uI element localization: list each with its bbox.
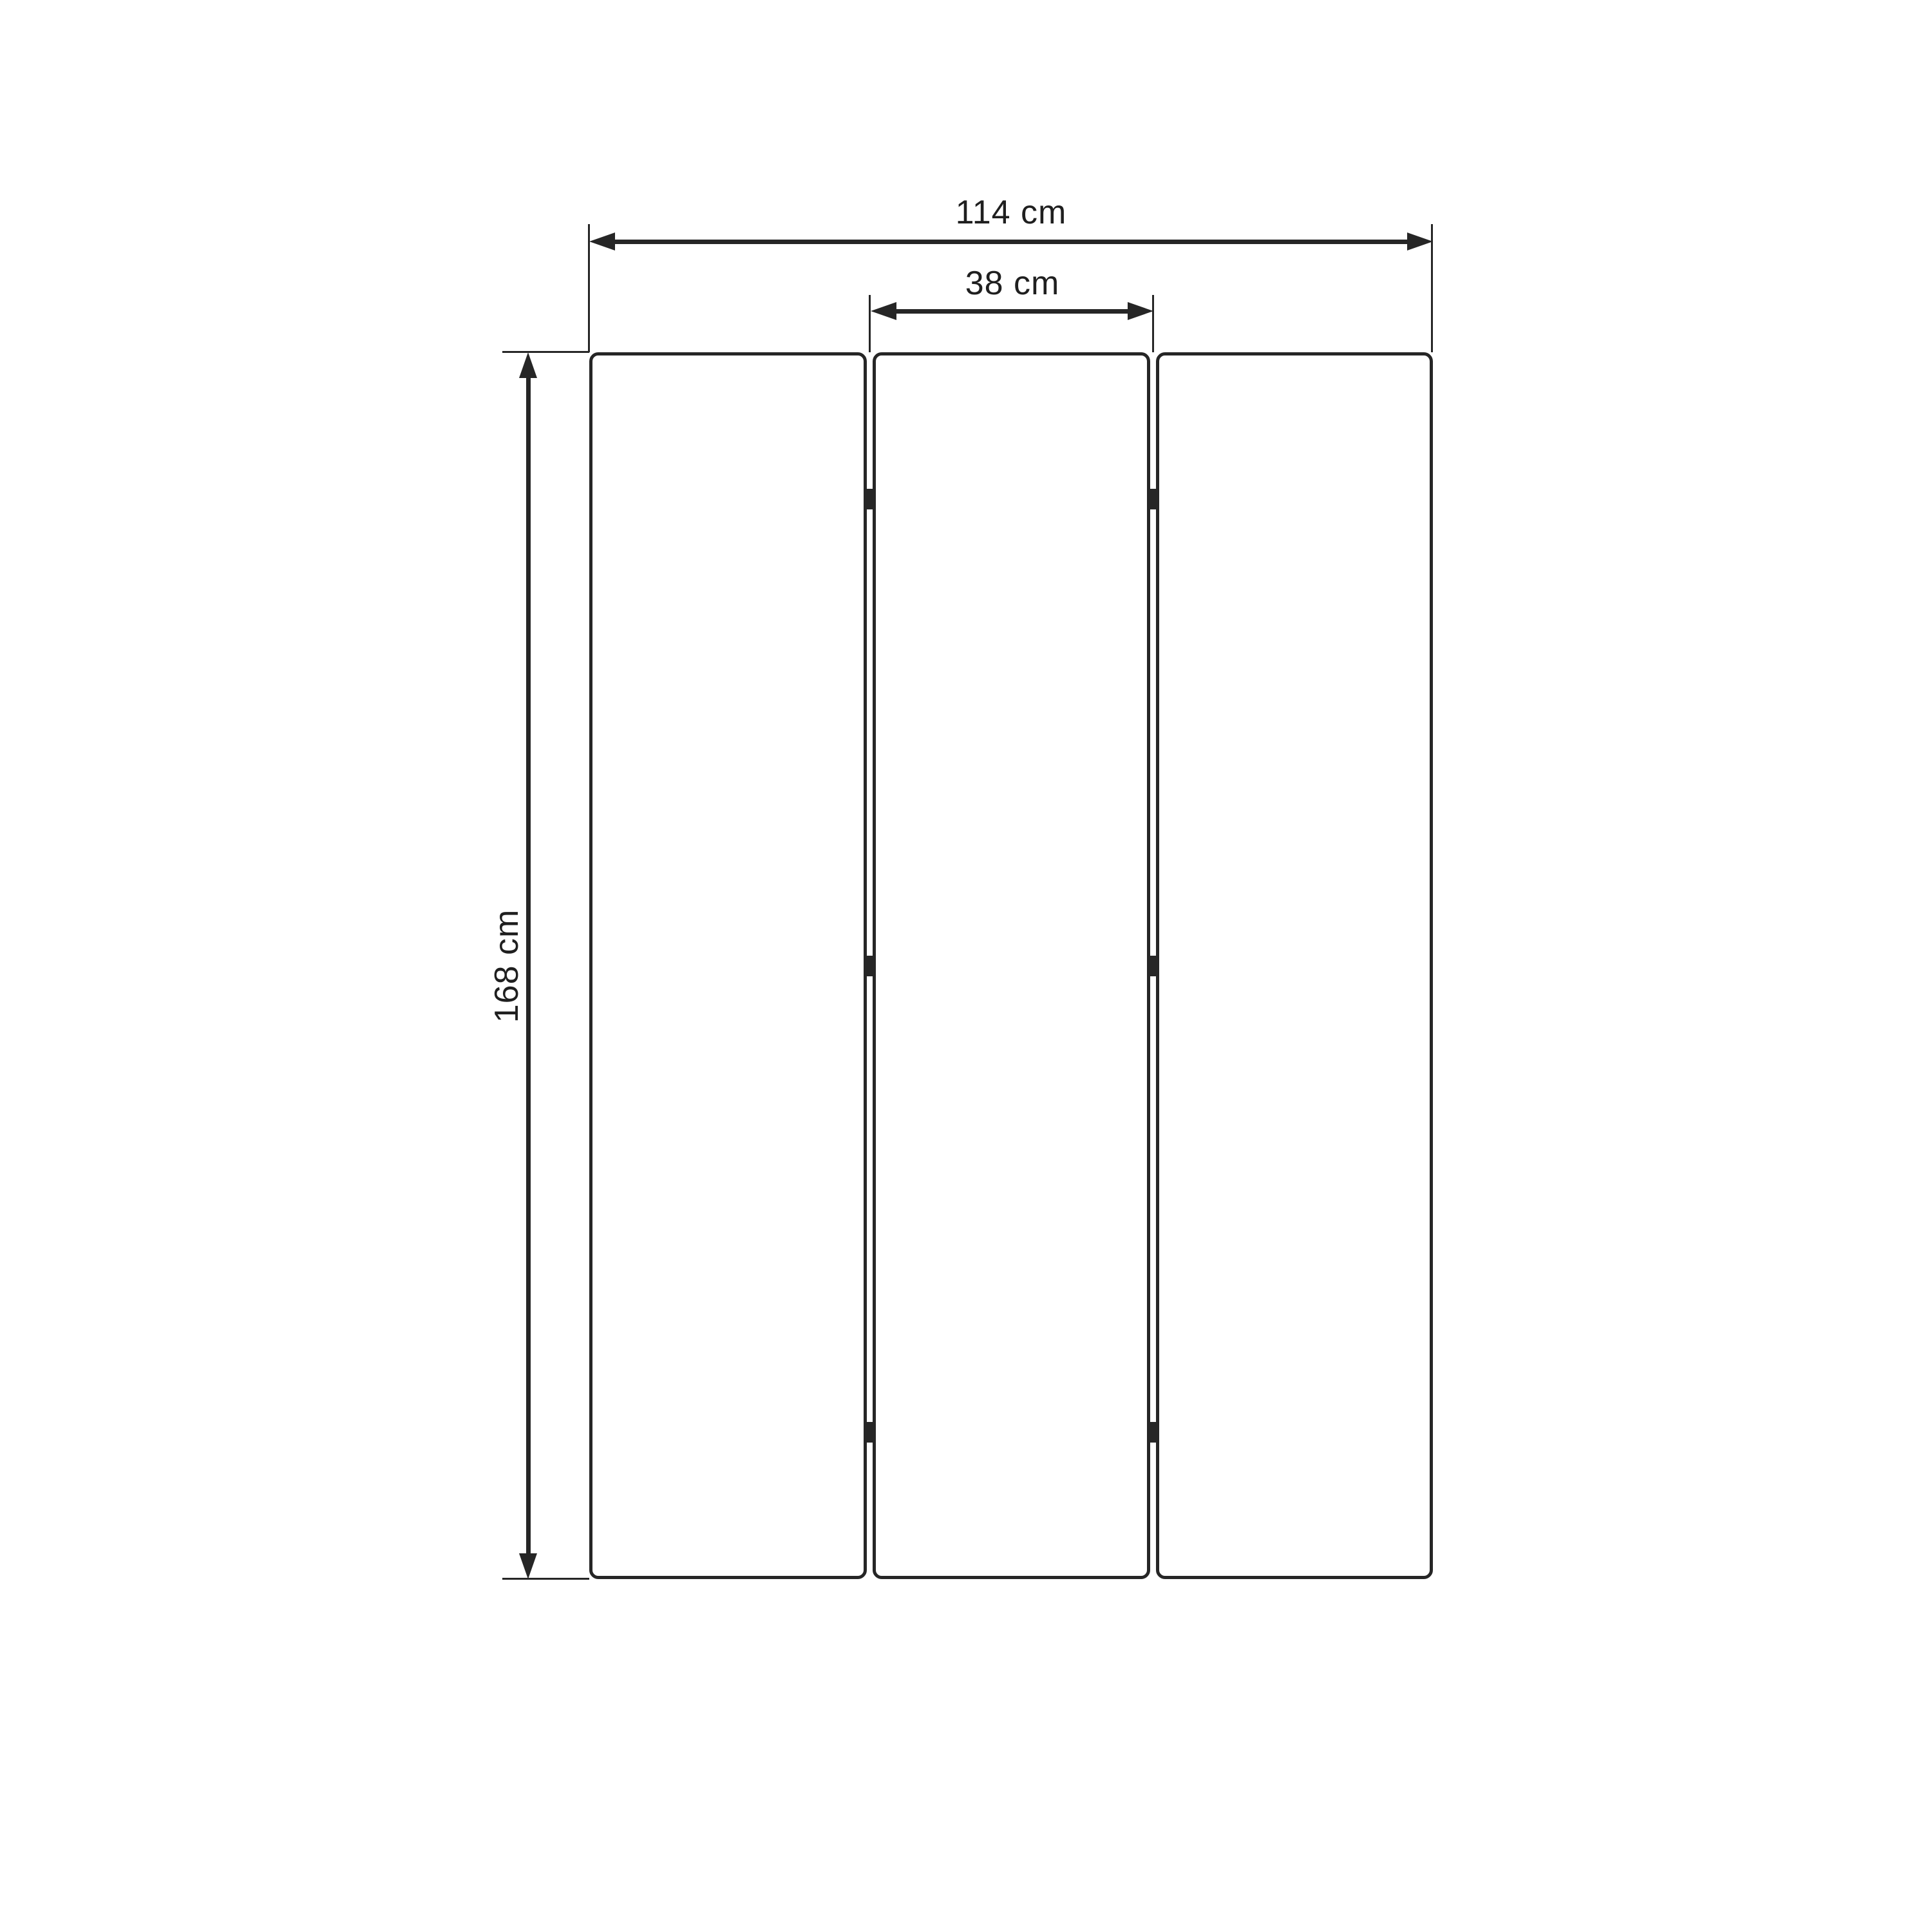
dimension-label-height: 168 cm	[488, 909, 526, 1023]
arrow-up-icon	[519, 352, 537, 378]
hinge-mark	[866, 956, 874, 976]
arrow-left-icon	[871, 302, 896, 320]
panel-middle	[873, 352, 1150, 1579]
hinge-mark	[1149, 956, 1157, 976]
dimension-line	[599, 240, 1422, 244]
dimension-line	[526, 364, 531, 1568]
panel-left	[589, 352, 867, 1579]
arrow-down-icon	[519, 1553, 537, 1579]
hinge-mark	[866, 489, 874, 509]
dimension-label-total-width: 114 cm	[956, 193, 1067, 232]
arrow-right-icon	[1128, 302, 1153, 320]
hinge-mark	[1149, 489, 1157, 509]
extension-line	[502, 351, 589, 353]
arrow-right-icon	[1407, 232, 1433, 251]
arrow-left-icon	[589, 232, 615, 251]
dimension-label-panel-width: 38 cm	[965, 264, 1060, 303]
dimension-line	[881, 309, 1142, 314]
hinge-mark	[866, 1422, 874, 1443]
extension-line	[502, 1578, 589, 1580]
hinge-mark	[1149, 1422, 1157, 1443]
dimension-drawing: 114 cm 38 cm 168 cm	[0, 0, 1932, 1932]
panel-right	[1156, 352, 1433, 1579]
